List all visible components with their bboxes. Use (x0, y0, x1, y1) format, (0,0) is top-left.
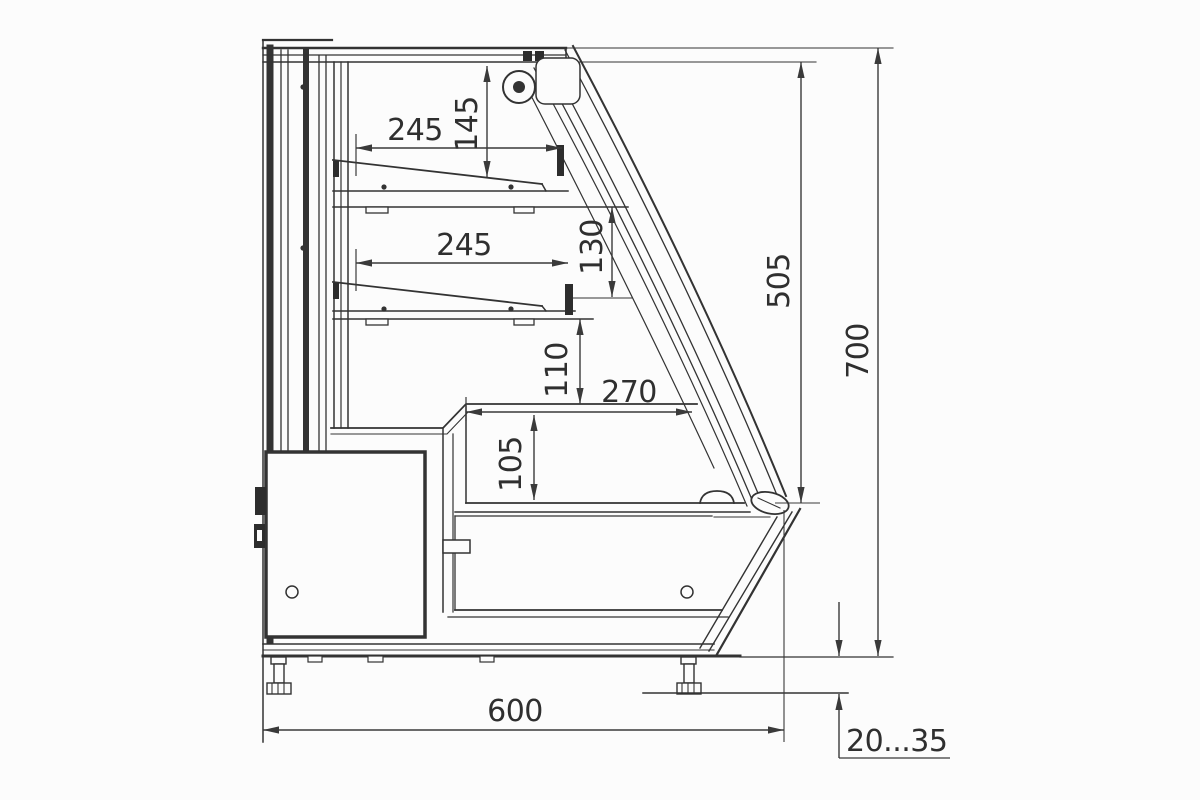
shelf-rear-hook (333, 161, 339, 177)
dim-overall-height: 700 (841, 48, 878, 656)
machinery-door (254, 452, 425, 637)
leveling-foot-right (677, 657, 701, 694)
technical-drawing-page: 245 145 245 130 110 270 105 505 700 (0, 0, 1200, 800)
dim-label-top-clearance: 145 (450, 96, 485, 152)
glass-front (521, 46, 791, 518)
dim-well-width: 270 (466, 375, 692, 421)
dim-label-shelf-to-counter: 110 (540, 342, 575, 398)
dim-label-well-width: 270 (601, 375, 657, 410)
dim-label-shelf2-width: 245 (436, 228, 492, 263)
hinge-block (523, 51, 532, 61)
dim-label-glass-front-height: 505 (762, 253, 797, 309)
dim-top-clearance: 145 (450, 66, 487, 177)
hinge-bracket (536, 58, 580, 104)
shelf-2 (333, 282, 632, 325)
screw-dot (300, 245, 305, 250)
dim-label-leg-height-range: 20...35 (846, 724, 947, 759)
dim-label-well-depth: 105 (494, 436, 529, 492)
dim-glass-front-height: 505 (762, 62, 820, 503)
screw-dot (300, 84, 305, 89)
dim-label-shelf1-width: 245 (387, 113, 443, 148)
lower-compartment (443, 516, 728, 617)
dim-label-shelf2-clearance: 130 (575, 219, 610, 275)
dim-shelf-to-counter: 110 (540, 319, 580, 404)
roller-axle (513, 81, 525, 93)
side-section-drawing: 245 145 245 130 110 270 105 505 700 (0, 0, 1200, 800)
shelf-rear-hook (333, 283, 339, 299)
leveling-foot-left (267, 657, 291, 694)
door-hinge (255, 487, 266, 515)
shelf-front-stop (565, 284, 573, 315)
base (263, 644, 893, 694)
dim-leg-height-range: 20...35 (839, 602, 950, 759)
front-lower-panel (700, 509, 800, 656)
dim-label-overall-depth: 600 (487, 694, 543, 729)
shelf-front-stop (557, 145, 564, 176)
glass-hinge (503, 51, 580, 104)
dim-well-depth: 105 (494, 415, 534, 500)
side-tab (443, 540, 470, 553)
front-bumper (700, 491, 734, 503)
dim-label-overall-height: 700 (841, 323, 876, 379)
dim-shelf2-width: 245 (356, 228, 568, 291)
shelf-1 (333, 145, 628, 213)
dim-shelf2-clearance: 130 (575, 207, 612, 297)
panel-screw (681, 586, 693, 598)
